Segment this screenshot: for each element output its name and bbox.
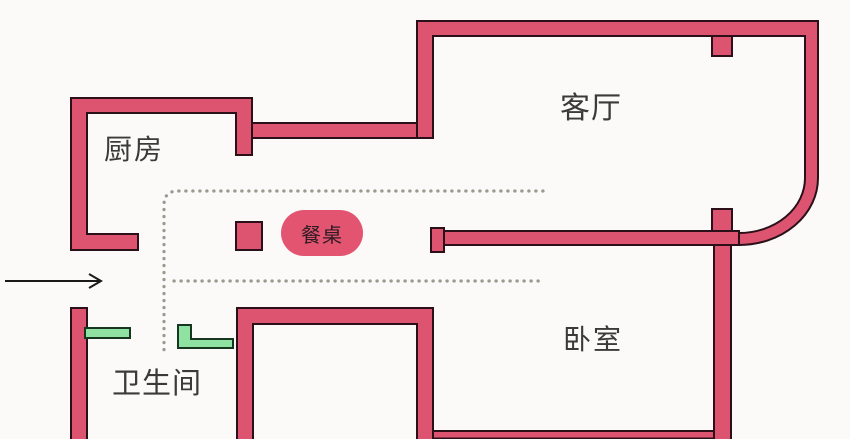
bedroom-label: 卧室 [563, 326, 623, 354]
bathroom-bedroom-walls [237, 308, 433, 439]
bathroom-door-left [85, 328, 130, 338]
bedroom-wall-stub [712, 209, 732, 231]
dining-table: 餐桌 [281, 210, 363, 256]
bedroom-door-frame-cap [431, 228, 444, 252]
bedroom-right-wall [714, 245, 731, 439]
living-room-walls [417, 21, 818, 245]
bedroom-top-wall [444, 231, 739, 245]
kitchen-walls [71, 98, 252, 250]
living-room-label: 客厅 [560, 94, 622, 124]
dining-table-label: 餐桌 [301, 219, 343, 248]
bathroom-door-right [178, 325, 233, 348]
hallway-top-wall [252, 123, 417, 138]
pillar [236, 222, 262, 250]
living-room-wall-stub [712, 36, 732, 56]
bedroom-bottom-wall [433, 431, 714, 439]
bathroom-label: 卫生间 [112, 370, 202, 399]
kitchen-label: 厨房 [104, 136, 164, 164]
floor-plan: 厨房 客厅 卧室 卫生间 餐桌 [0, 0, 850, 439]
